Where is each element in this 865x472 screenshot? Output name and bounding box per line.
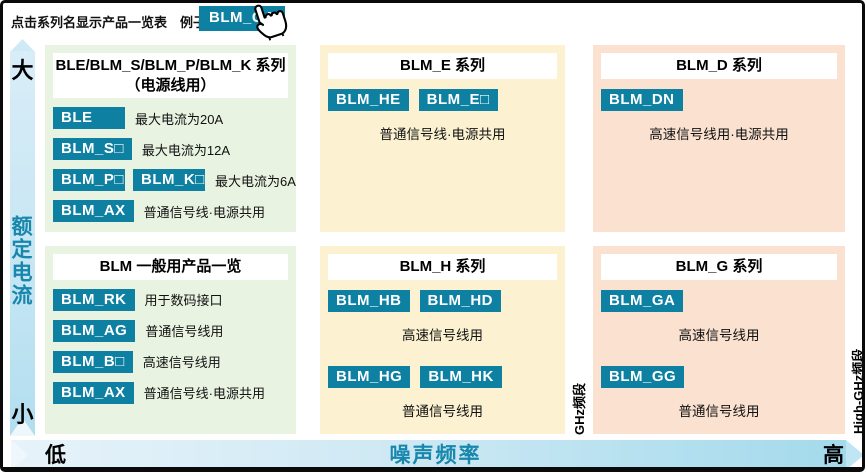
series-description: 最大电流为6A (215, 171, 296, 190)
series-row: BLM_AX普通信号线·电源共用 (53, 382, 288, 404)
series-button-row: BLM_GA (601, 290, 837, 312)
series-button[interactable]: BLM_AG (53, 320, 135, 342)
series-description: 用于数码接口 (145, 290, 223, 309)
series-button[interactable]: BLM_GA (601, 290, 683, 312)
series-group: BLM_HBBLM_HD高速信号线用 (328, 290, 557, 344)
series-button[interactable]: BLM_E□ (419, 89, 498, 111)
panel-power-line-series: BLE/BLM_S/BLM_P/BLM_K 系列（电源线用）BLE最大电流为20… (45, 45, 296, 232)
series-group: BLM_GG普通信号线用 (601, 366, 837, 420)
panel-title: BLM_D 系列 (601, 53, 837, 79)
series-button[interactable]: BLM_HB (328, 290, 410, 312)
series-description: 普通信号线用 (328, 400, 557, 420)
ghz-band-label: GHz频段 (569, 383, 588, 435)
series-group: BLM_HGBLM_HK普通信号线用 (328, 366, 557, 420)
panel-title-line: BLM_H 系列 (330, 257, 555, 277)
series-description: 高速信号线用 (601, 324, 837, 344)
series-description: 普通信号线用 (145, 321, 223, 340)
series-button-row: BLM_DN (601, 89, 837, 111)
panel-title: BLE/BLM_S/BLM_P/BLM_K 系列（电源线用） (53, 53, 288, 98)
example-series-button[interactable]: BLM_GA (199, 6, 285, 31)
series-button[interactable]: BLM_AX (53, 382, 134, 404)
series-description: 高速信号线用·电源共用 (601, 123, 837, 143)
panel-title-line: BLM_G 系列 (603, 257, 835, 277)
series-button[interactable]: BLM_DN (601, 89, 683, 111)
panel-title-line: BLM_D 系列 (603, 56, 835, 76)
series-group: BLM_GA高速信号线用 (601, 290, 837, 344)
product-selection-chart: 点击系列名显示产品一览表 例子） BLM_GA 大 额定电流 小 低 噪声频率 … (0, 0, 865, 472)
series-description: 高速信号线用 (143, 352, 221, 371)
series-button[interactable]: BLM_HG (328, 366, 410, 388)
series-button[interactable]: BLM_AX (53, 200, 134, 222)
panel-title-line: BLE/BLM_S/BLM_P/BLM_K 系列 (55, 56, 286, 76)
series-row: BLM_RK用于数码接口 (53, 289, 288, 311)
series-description: 普通信号线·电源共用 (144, 383, 265, 402)
series-description: 高速信号线用 (328, 324, 557, 344)
series-row: BLE最大电流为20A (53, 107, 288, 129)
series-description: 普通信号线用 (601, 400, 837, 420)
series-group: BLM_HEBLM_E□普通信号线·电源共用 (328, 89, 557, 143)
panel-title-line: BLM_E 系列 (330, 56, 555, 76)
series-button-row: BLM_HEBLM_E□ (328, 89, 557, 111)
series-button[interactable]: BLM_RK (53, 289, 135, 311)
panel-blm-g-series: BLM_G 系列BLM_GA高速信号线用BLM_GG普通信号线用 (593, 246, 845, 434)
panel-title: BLM 一般用产品一览 (53, 254, 288, 280)
x-axis-max-label: 高 (823, 443, 844, 469)
panel-title-line: BLM 一般用产品一览 (55, 257, 286, 277)
series-button-row: BLM_HBBLM_HD (328, 290, 557, 312)
series-button[interactable]: BLE (53, 107, 125, 129)
series-group: BLM_DN高速信号线用·电源共用 (601, 89, 837, 143)
series-button-row: BLM_HGBLM_HK (328, 366, 557, 388)
y-axis-max-label: 大 (10, 53, 35, 85)
series-button[interactable]: BLM_B□ (53, 351, 133, 373)
y-axis-min-label: 小 (10, 397, 35, 429)
series-button[interactable]: BLM_HE (328, 89, 409, 111)
series-row: BLM_B□高速信号线用 (53, 351, 288, 373)
panel-blm-e-series: BLM_E 系列BLM_HEBLM_E□普通信号线·电源共用 (320, 45, 565, 232)
series-description: 普通信号线·电源共用 (328, 123, 557, 143)
panel-title: BLM_H 系列 (328, 254, 557, 280)
series-row: BLM_P□BLM_K□最大电流为6A (53, 169, 288, 191)
panel-title: BLM_G 系列 (601, 254, 837, 280)
series-button[interactable]: BLM_GG (601, 366, 684, 388)
series-row: BLM_AG普通信号线用 (53, 320, 288, 342)
panel-title-line: （电源线用） (55, 76, 286, 96)
panel-blm-d-series: BLM_D 系列BLM_DN高速信号线用·电源共用 (593, 45, 845, 232)
panel-blm-general-series: BLM 一般用产品一览BLM_RK用于数码接口BLM_AG普通信号线用BLM_B… (45, 246, 296, 434)
x-axis-title: 噪声频率 (3, 443, 865, 469)
y-axis-title: 额定电流 (10, 215, 35, 307)
series-row: BLM_AX普通信号线·电源共用 (53, 200, 288, 222)
series-description: 最大电流为20A (135, 109, 223, 128)
series-description: 普通信号线·电源共用 (144, 202, 265, 221)
instruction-text: 点击系列名显示产品一览表 例子） (11, 12, 219, 31)
series-button[interactable]: BLM_K□ (133, 169, 205, 191)
series-button[interactable]: BLM_HK (420, 366, 502, 388)
series-button[interactable]: BLM_S□ (53, 138, 132, 160)
high-ghz-band-label: High-GHz频段 (848, 349, 865, 434)
panel-blm-h-series: BLM_H 系列BLM_HBBLM_HD高速信号线用BLM_HGBLM_HK普通… (320, 246, 565, 434)
series-description: 最大电流为12A (142, 140, 230, 159)
series-button[interactable]: BLM_HD (420, 290, 502, 312)
panel-title: BLM_E 系列 (328, 53, 557, 79)
series-button[interactable]: BLM_P□ (53, 169, 125, 191)
series-row: BLM_S□最大电流为12A (53, 138, 288, 160)
series-button-row: BLM_GG (601, 366, 837, 388)
